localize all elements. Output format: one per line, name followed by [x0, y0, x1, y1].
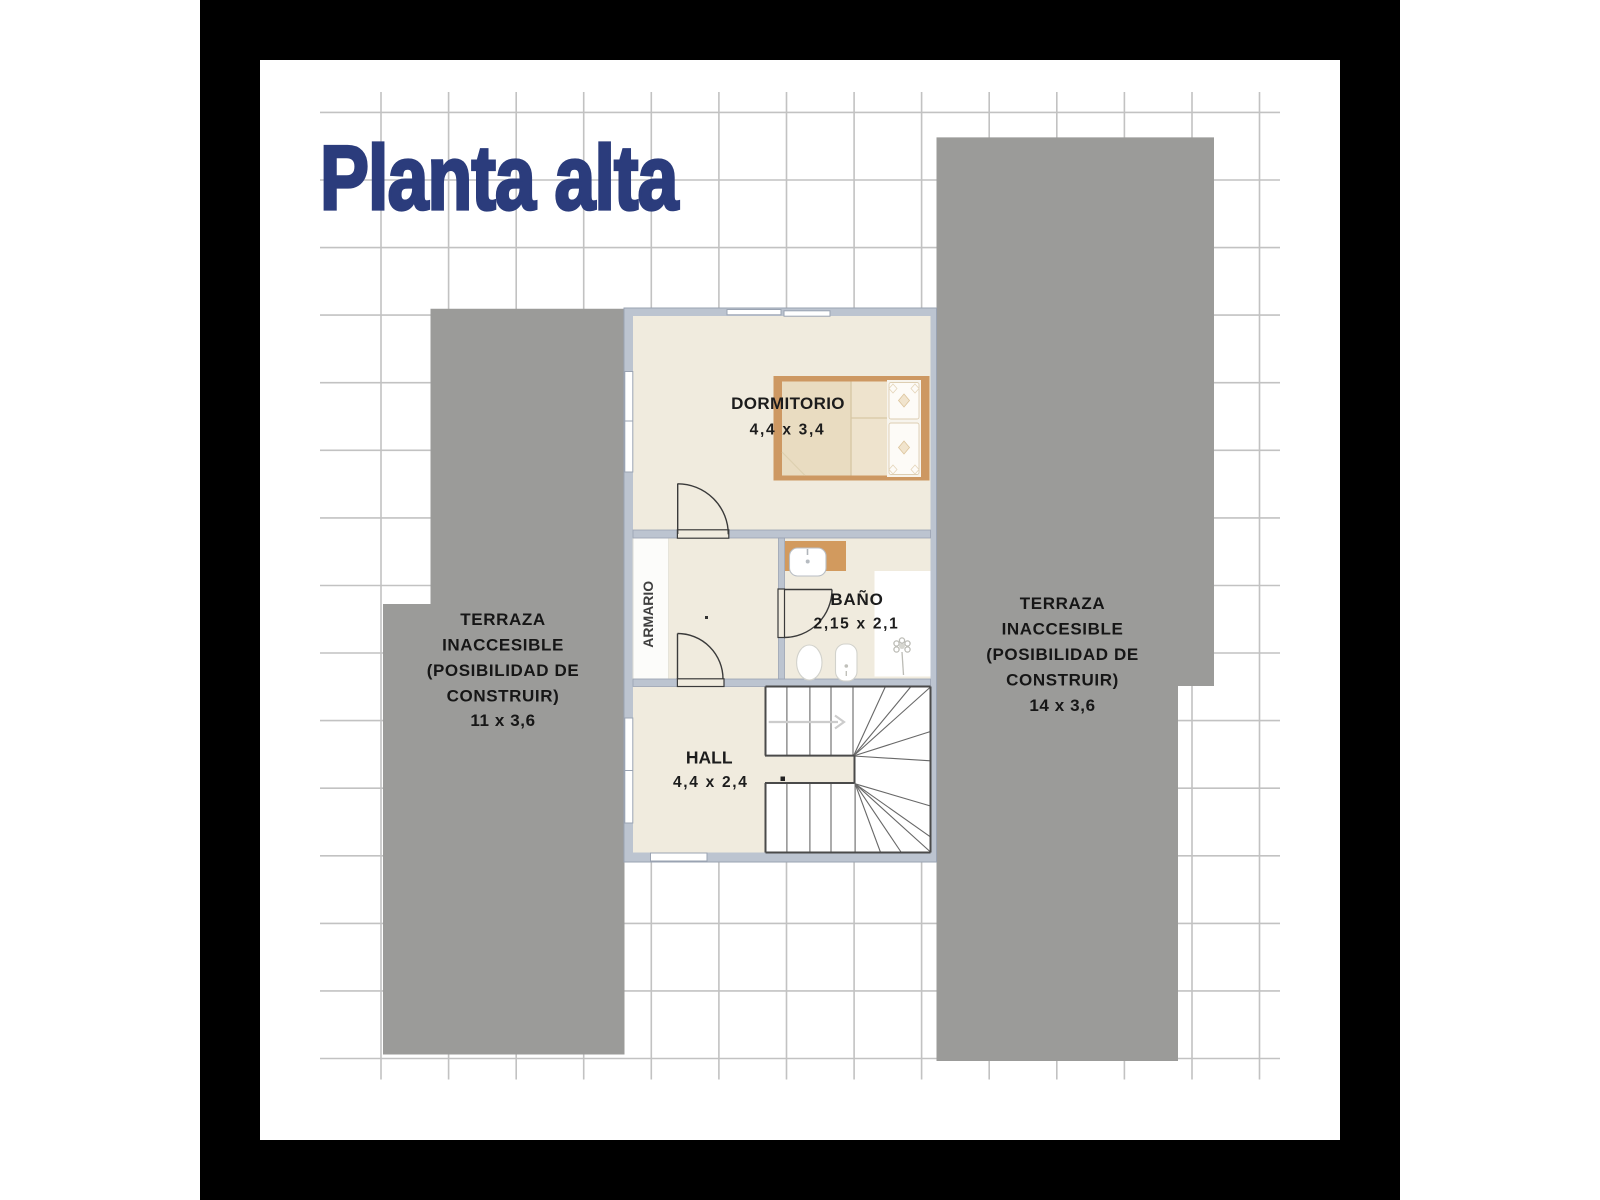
svg-text:INACCESIBLE: INACCESIBLE	[1002, 620, 1124, 639]
svg-text:CONSTRUIR): CONSTRUIR)	[447, 687, 560, 706]
svg-text:11 x 3,6: 11 x 3,6	[470, 711, 535, 730]
svg-text:4,4 x 3,4: 4,4 x 3,4	[750, 422, 826, 439]
svg-text:4,4 x 2,4: 4,4 x 2,4	[673, 774, 749, 791]
svg-text:ARMARIO: ARMARIO	[640, 581, 656, 648]
svg-text:TERRAZA: TERRAZA	[1020, 594, 1105, 613]
svg-text:(POSIBILIDAD DE: (POSIBILIDAD DE	[986, 645, 1139, 664]
svg-text:CONSTRUIR): CONSTRUIR)	[1006, 671, 1119, 690]
svg-text:Planta alta: Planta alta	[320, 126, 679, 228]
svg-text:DORMITORIO: DORMITORIO	[731, 394, 845, 413]
svg-text:2,15 x 2,1: 2,15 x 2,1	[814, 616, 900, 633]
svg-text:(POSIBILIDAD DE: (POSIBILIDAD DE	[427, 661, 580, 680]
svg-text:INACCESIBLE: INACCESIBLE	[442, 636, 564, 655]
svg-text:TERRAZA: TERRAZA	[460, 610, 545, 629]
svg-text:HALL: HALL	[686, 748, 733, 768]
svg-text:BAÑO: BAÑO	[830, 589, 883, 609]
svg-text:14 x 3,6: 14 x 3,6	[1029, 696, 1095, 715]
